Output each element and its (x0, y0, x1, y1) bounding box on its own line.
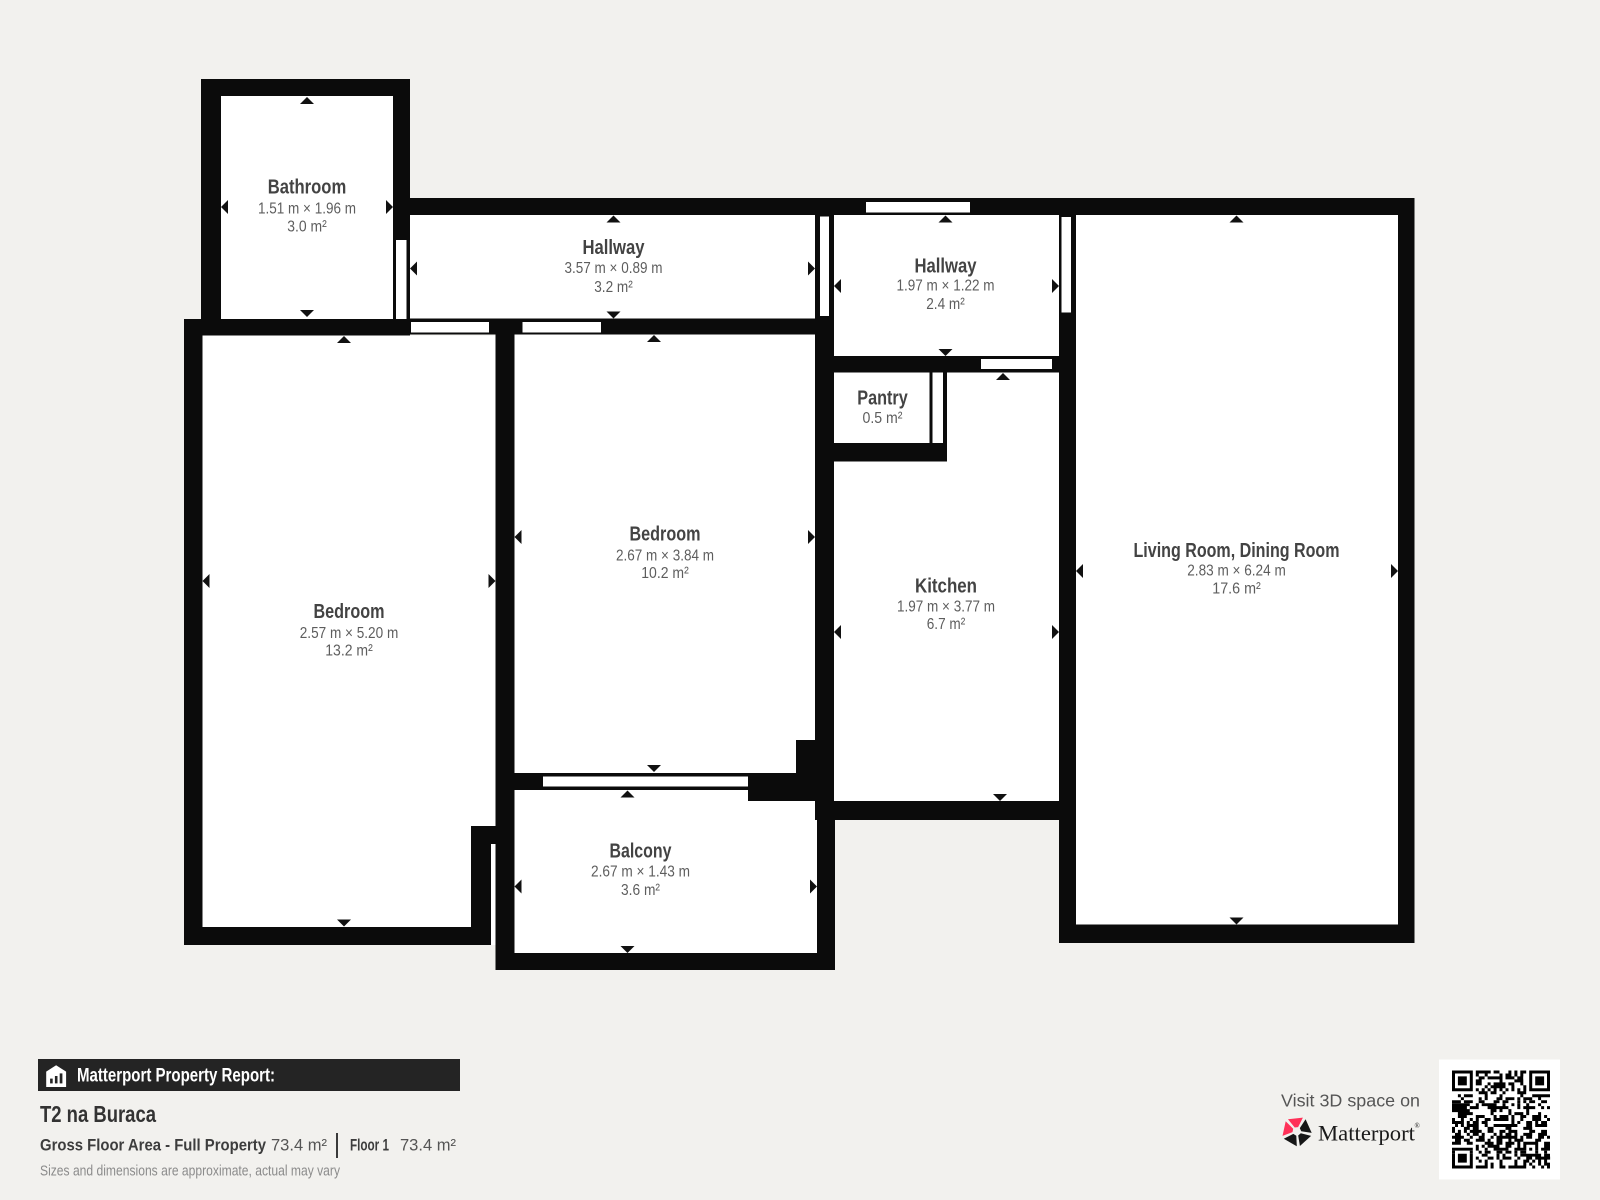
svg-text:2.57 m × 5.20 m: 2.57 m × 5.20 m (300, 625, 399, 642)
svg-text:10.2 m²: 10.2 m² (641, 565, 689, 582)
svg-text:®: ® (1415, 1122, 1421, 1130)
svg-text:Hallway: Hallway (583, 237, 646, 259)
svg-text:1.97 m × 1.22 m: 1.97 m × 1.22 m (897, 278, 995, 295)
svg-text:3.2 m²: 3.2 m² (594, 279, 633, 296)
svg-text:13.2 m²: 13.2 m² (325, 643, 373, 660)
svg-text:73.4 m²: 73.4 m² (400, 1137, 457, 1155)
svg-text:17.6 m²: 17.6 m² (1212, 581, 1261, 598)
svg-text:73.4 m²: 73.4 m² (271, 1137, 328, 1155)
svg-text:Matterport: Matterport (1318, 1121, 1415, 1146)
svg-text:2.67 m × 3.84 m: 2.67 m × 3.84 m (616, 548, 714, 565)
svg-text:Living Room, Dining Room: Living Room, Dining Room (1134, 540, 1340, 562)
svg-text:Visit 3D space on: Visit 3D space on (1281, 1091, 1420, 1111)
svg-text:0.5 m²: 0.5 m² (863, 410, 904, 427)
svg-text:Sizes and dimensions are appro: Sizes and dimensions are approximate, ac… (40, 1164, 341, 1180)
svg-text:Bathroom: Bathroom (268, 177, 347, 199)
svg-text:3.57 m × 0.89 m: 3.57 m × 0.89 m (565, 260, 663, 277)
svg-text:Matterport Property Report:: Matterport Property Report: (77, 1066, 275, 1087)
svg-text:Pantry: Pantry (857, 388, 908, 410)
svg-text:Bedroom: Bedroom (630, 524, 701, 546)
svg-text:Balcony: Balcony (610, 841, 673, 863)
svg-text:Hallway: Hallway (915, 256, 978, 278)
svg-text:T2 na Buraca: T2 na Buraca (40, 1101, 157, 1127)
svg-text:1.97 m × 3.77 m: 1.97 m × 3.77 m (897, 599, 995, 616)
svg-text:Bedroom: Bedroom (314, 601, 385, 623)
svg-text:Floor 1: Floor 1 (350, 1137, 389, 1155)
svg-text:2.83 m × 6.24 m: 2.83 m × 6.24 m (1187, 563, 1286, 580)
svg-text:1.51 m × 1.96 m: 1.51 m × 1.96 m (258, 201, 356, 218)
svg-text:Gross Floor Area - Full Proper: Gross Floor Area - Full Property (40, 1137, 267, 1155)
svg-text:2.4 m²: 2.4 m² (926, 296, 965, 313)
svg-text:2.67 m × 1.43 m: 2.67 m × 1.43 m (591, 864, 690, 881)
svg-text:3.0 m²: 3.0 m² (287, 219, 327, 236)
svg-text:3.6 m²: 3.6 m² (621, 882, 661, 899)
svg-text:Kitchen: Kitchen (915, 576, 977, 598)
svg-text:6.7 m²: 6.7 m² (927, 616, 966, 633)
